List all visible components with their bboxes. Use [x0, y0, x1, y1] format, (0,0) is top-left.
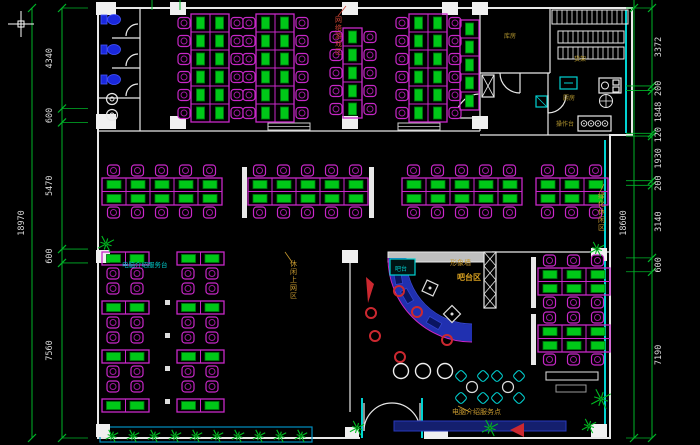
chair: [364, 68, 376, 79]
chair: [456, 165, 468, 176]
chair: [296, 72, 308, 83]
chair: [231, 54, 243, 65]
chair: [504, 207, 516, 218]
chair: [542, 207, 554, 218]
chair: [432, 207, 444, 218]
chair: [132, 207, 144, 218]
cursor-crosshair: [8, 11, 34, 37]
chair: [396, 90, 408, 101]
overall-dimension-label: 18970: [17, 210, 27, 236]
chair: [408, 207, 420, 218]
chair: [592, 312, 604, 323]
chair: [449, 90, 461, 101]
desk-island-horizontal: [102, 165, 222, 218]
chair: [480, 207, 492, 218]
chair: [243, 72, 255, 83]
chair: [456, 207, 468, 218]
chair: [396, 108, 408, 119]
chair: [108, 207, 120, 218]
dimension-label: 7190: [654, 345, 664, 365]
chair: [568, 297, 580, 308]
chair: [590, 165, 602, 176]
chair: [449, 108, 461, 119]
chair: [542, 165, 554, 176]
chair: [243, 90, 255, 101]
chair: [206, 381, 218, 392]
chair: [544, 297, 556, 308]
overall-dimension-label: 18600: [619, 210, 629, 236]
chair: [131, 283, 143, 294]
chair: [178, 18, 190, 29]
chair: [131, 366, 143, 377]
chair: [180, 207, 192, 218]
desk-island-horizontal: [242, 165, 374, 218]
chair: [396, 54, 408, 65]
bar-stool: [395, 352, 405, 362]
desk-island-vertical: [396, 14, 461, 122]
desk-stack: [102, 252, 149, 412]
chair: [544, 354, 556, 365]
plant: [591, 389, 610, 408]
desk-island-horizontal: [531, 255, 610, 308]
chair: [432, 165, 444, 176]
chair: [243, 18, 255, 29]
bar-zone-label: 吧台区: [457, 272, 481, 282]
plant: [295, 430, 307, 442]
dimension-label: 600: [654, 257, 664, 272]
chair: [231, 18, 243, 29]
chair: [204, 207, 216, 218]
dimension-label: 200: [654, 175, 664, 190]
plant: [148, 430, 160, 442]
plant: [190, 430, 202, 442]
desk-island-vertical: [178, 14, 243, 122]
chair: [156, 207, 168, 218]
chair: [592, 255, 604, 266]
chair: [350, 207, 362, 218]
chair: [243, 108, 255, 119]
chair: [243, 54, 255, 65]
chair: [480, 165, 492, 176]
chair: [206, 268, 218, 279]
chair: [107, 366, 119, 377]
chair: [178, 72, 190, 83]
chair: [182, 366, 194, 377]
chair: [544, 255, 556, 266]
chair: [302, 165, 314, 176]
chair: [182, 332, 194, 343]
room-store-label: 库房: [504, 32, 516, 40]
chair: [364, 50, 376, 61]
chair: [182, 317, 194, 328]
dimension-label: 600: [45, 248, 55, 263]
chair: [206, 317, 218, 328]
zone-top: 网络游戏区: [335, 16, 342, 56]
chair: [544, 312, 556, 323]
floor-plan[interactable]: 4340600547060075601897033722001848120193…: [0, 0, 700, 445]
chair: [180, 165, 192, 176]
chair: [330, 86, 342, 97]
chair: [364, 86, 376, 97]
chair: [204, 165, 216, 176]
chair: [296, 108, 308, 119]
chair: [326, 207, 338, 218]
feature-wall-label: 形象墙: [450, 258, 471, 267]
plant: [274, 430, 286, 442]
chair: [350, 165, 362, 176]
service-desk-left: 电脑介绍服务台: [122, 260, 168, 269]
chair: [396, 36, 408, 47]
chair: [396, 72, 408, 83]
kitchen-fixtures: [536, 77, 621, 131]
chair: [568, 255, 580, 266]
desk-island-horizontal: [531, 312, 610, 365]
chair: [568, 354, 580, 365]
chair: [449, 36, 461, 47]
chair: [231, 36, 243, 47]
zone-mid: 休闲上网区: [290, 259, 297, 300]
dimension-label: 7560: [45, 340, 55, 360]
chair: [156, 165, 168, 176]
chair: [131, 268, 143, 279]
dimension-chain-left: 43406005470600756018970: [17, 4, 88, 442]
chair: [504, 165, 516, 176]
bar-stool: [366, 308, 376, 318]
chair: [206, 332, 218, 343]
dimension-label: 5470: [45, 175, 55, 195]
desk-island-horizontal: [402, 165, 522, 218]
dimension-label: 600: [45, 108, 55, 123]
chair: [254, 165, 266, 176]
chair: [107, 268, 119, 279]
chair: [364, 32, 376, 43]
chair: [182, 268, 194, 279]
chair: [131, 381, 143, 392]
chair: [231, 90, 243, 101]
kitchen-label: 厨房: [563, 94, 575, 102]
plant: [211, 430, 223, 442]
service-desk-bottom: 电脑介绍服务点: [452, 407, 501, 416]
chair: [296, 18, 308, 29]
desk-stack: [177, 252, 224, 412]
chair: [182, 283, 194, 294]
chair: [206, 283, 218, 294]
bar-stool: [370, 331, 380, 341]
dimension-label: 120: [654, 127, 664, 142]
rack-label: 货架: [574, 55, 586, 63]
chair: [296, 54, 308, 65]
chair: [178, 90, 190, 101]
plant: [127, 430, 139, 442]
lounge-table-set: [491, 370, 526, 405]
chair: [408, 165, 420, 176]
dimension-label: 4340: [45, 48, 55, 68]
lounge-table-set: [455, 370, 490, 405]
desk-island-vertical: [460, 20, 479, 110]
chair: [302, 207, 314, 218]
chair: [178, 36, 190, 47]
dimension-label: 3372: [654, 37, 664, 57]
dimension-label: 1848: [654, 102, 664, 122]
bar-sign: 吧台: [395, 265, 407, 273]
stool: [416, 364, 431, 379]
chair: [107, 317, 119, 328]
chair: [108, 165, 120, 176]
chair: [132, 165, 144, 176]
worktop-label: 操作台: [556, 120, 574, 128]
chair: [131, 332, 143, 343]
chair: [278, 207, 290, 218]
chair: [243, 36, 255, 47]
stool: [394, 364, 409, 379]
desk-islands: [102, 14, 610, 412]
chair: [296, 90, 308, 101]
dimension-label: 200: [654, 81, 664, 96]
chair: [131, 317, 143, 328]
dimension-label: 3140: [654, 211, 664, 231]
plant: [169, 430, 181, 442]
stools-and-lounge: [366, 286, 525, 404]
cad-application-canvas[interactable]: 4340600547060075601897033722001848120193…: [0, 0, 700, 445]
chair: [178, 54, 190, 65]
chair: [182, 381, 194, 392]
chair: [326, 165, 338, 176]
chair: [566, 165, 578, 176]
plant: [232, 430, 244, 442]
chair: [231, 108, 243, 119]
zone-right: 绿化休闲区: [598, 191, 605, 232]
plant: [98, 236, 114, 252]
plant: [253, 430, 265, 442]
chair: [330, 104, 342, 115]
chair: [330, 68, 342, 79]
chair: [107, 381, 119, 392]
chair: [107, 283, 119, 294]
desk-island-vertical: [243, 14, 308, 122]
chair: [449, 18, 461, 29]
chair: [568, 312, 580, 323]
chair: [396, 18, 408, 29]
chair: [449, 54, 461, 65]
chair: [107, 332, 119, 343]
chair: [364, 104, 376, 115]
chair: [449, 72, 461, 83]
chair: [592, 297, 604, 308]
chair: [296, 36, 308, 47]
chair: [278, 165, 290, 176]
dimension-label: 1930: [654, 148, 664, 168]
chair: [592, 354, 604, 365]
chair: [178, 108, 190, 119]
chair: [254, 207, 266, 218]
stool: [438, 364, 453, 379]
chair: [206, 366, 218, 377]
chair: [566, 207, 578, 218]
chair: [231, 72, 243, 83]
